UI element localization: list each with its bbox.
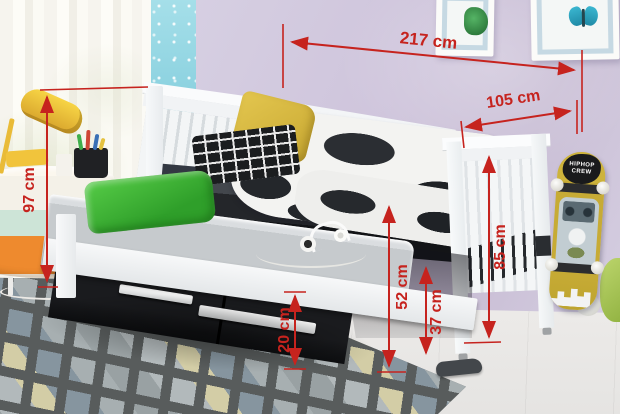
headphones-earcup xyxy=(334,229,347,242)
plant-art xyxy=(447,1,484,46)
skyline-graphic xyxy=(550,287,595,308)
picture-frame-plant xyxy=(435,0,494,57)
skateboard-graphic xyxy=(555,197,600,272)
pencil-cup xyxy=(74,148,108,178)
boombox-icon xyxy=(562,201,595,223)
desk-lamp-base xyxy=(5,149,48,168)
butterfly-body xyxy=(582,9,585,27)
small-cup xyxy=(56,154,72,176)
headphones xyxy=(298,222,362,264)
skateboard-wheel xyxy=(596,181,610,195)
skateboard-logo: HIPHOP CREW xyxy=(562,153,602,186)
pen xyxy=(85,130,90,150)
cartoon-character xyxy=(559,224,594,266)
caster xyxy=(542,328,551,335)
skateboard-logo-text-bottom: CREW xyxy=(562,168,600,178)
butterfly-art xyxy=(542,0,609,50)
headphones-earcup xyxy=(300,236,316,252)
skateboard: HIPHOP CREW xyxy=(543,150,612,316)
picture-frame-butterfly xyxy=(530,0,619,61)
plant-icon xyxy=(464,7,488,35)
skateboard-deck: HIPHOP CREW xyxy=(548,150,607,311)
skateboard-wheel xyxy=(590,261,604,275)
product-photo-bed-with-dimensions: HIPHOP CREW 217 cm 1 xyxy=(0,0,620,414)
